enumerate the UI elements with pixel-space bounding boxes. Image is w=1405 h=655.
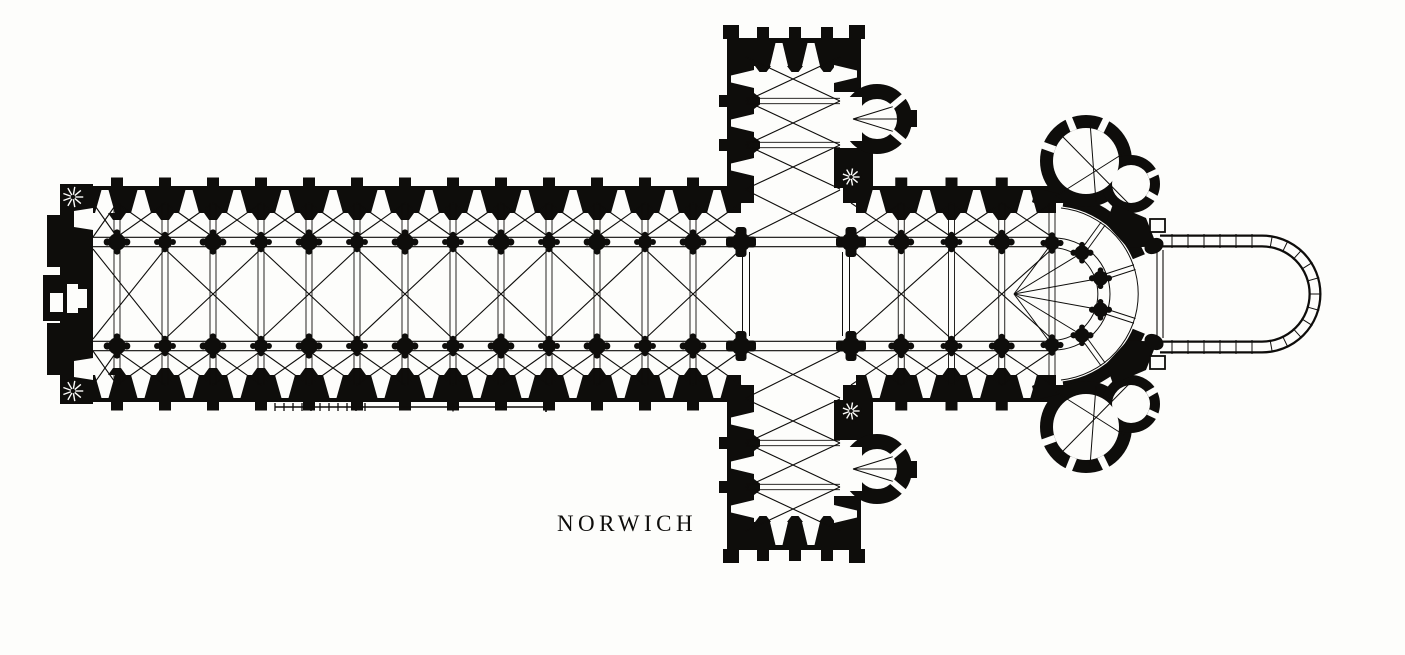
plan-drawing — [43, 25, 1322, 563]
plan-sheet: NORWICH — [0, 0, 1405, 655]
window-door-openings — [50, 43, 1037, 545]
vault-lines — [93, 57, 1163, 531]
masonry-walls — [43, 25, 1066, 563]
east-end — [1032, 115, 1322, 473]
cathedral-floor-plan: NORWICH — [0, 0, 1405, 655]
plan-title: NORWICH — [557, 511, 697, 536]
